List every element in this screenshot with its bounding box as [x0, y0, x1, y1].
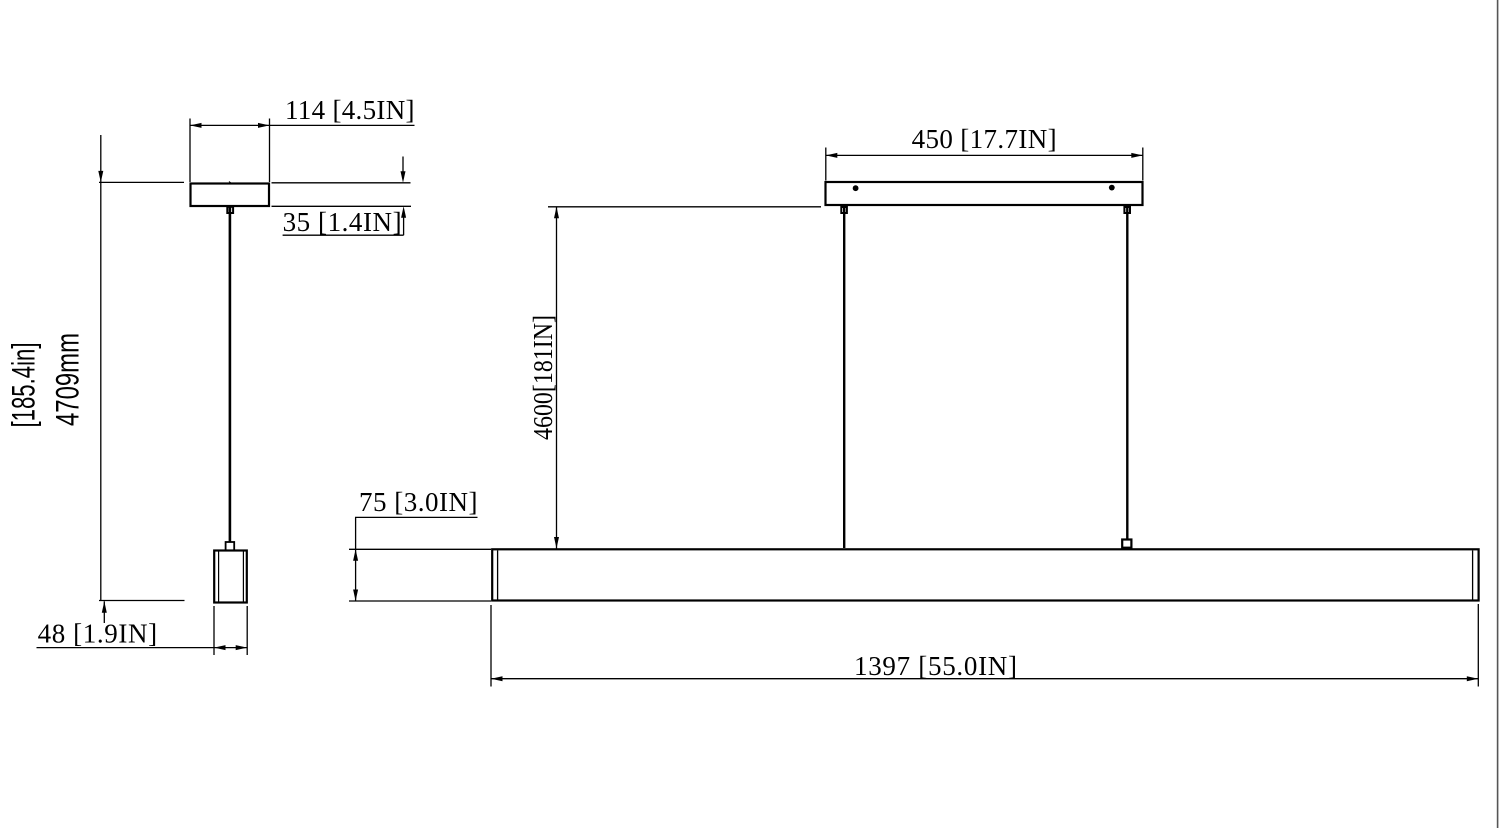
- svg-text:4600[181IN]: 4600[181IN]: [528, 315, 558, 440]
- svg-text:4709mm: 4709mm: [50, 333, 86, 426]
- svg-text:35 [1.4IN]: 35 [1.4IN]: [283, 207, 402, 237]
- svg-text:114 [4.5IN]: 114 [4.5IN]: [285, 95, 415, 125]
- svg-text:48 [1.9IN]: 48 [1.9IN]: [38, 619, 158, 649]
- svg-text:[185.4in]: [185.4in]: [6, 343, 42, 428]
- svg-text:450 [17.7IN]: 450 [17.7IN]: [912, 124, 1057, 154]
- svg-text:75 [3.0IN]: 75 [3.0IN]: [359, 487, 478, 517]
- svg-text:1397 [55.0IN]: 1397 [55.0IN]: [854, 651, 1017, 681]
